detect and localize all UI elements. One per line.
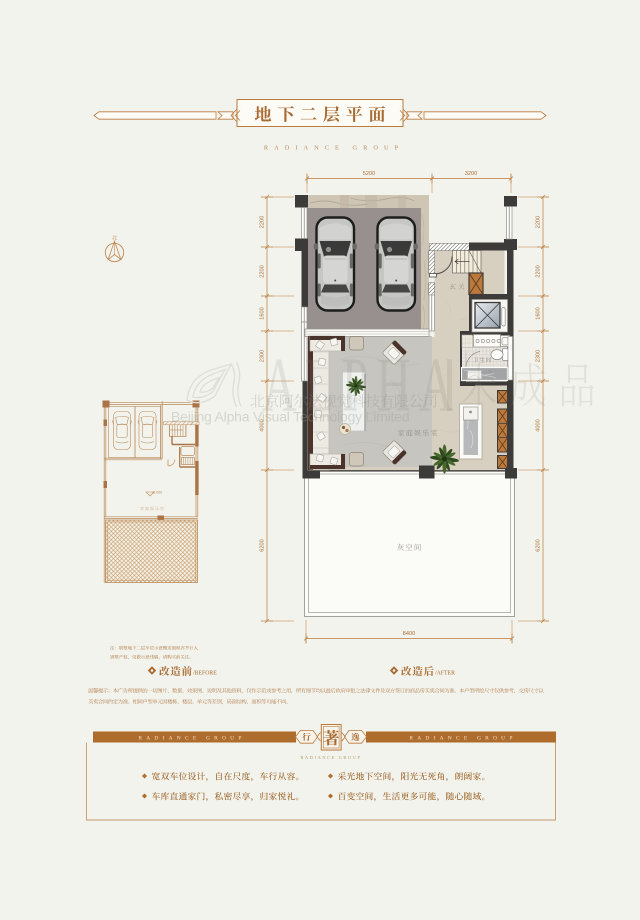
svg-text:ALPHA: ALPHA — [262, 342, 461, 427]
svg-text:RADIANCE GROUP: RADIANCE GROUP — [409, 735, 516, 741]
svg-text:-6.000: -6.000 — [152, 491, 162, 495]
svg-text:RADIANCE GROUP: RADIANCE GROUP — [264, 145, 404, 152]
svg-text:RADIANCE GROUP: RADIANCE GROUP — [300, 755, 361, 760]
svg-text:/AFTER: /AFTER — [435, 671, 455, 677]
svg-text:3200: 3200 — [465, 171, 477, 177]
svg-text:1600: 1600 — [260, 307, 266, 319]
svg-text:2200: 2200 — [260, 216, 266, 228]
svg-text:2200: 2200 — [536, 265, 542, 277]
svg-text:6200: 6200 — [536, 539, 542, 551]
svg-text:8400: 8400 — [403, 631, 415, 637]
svg-text:2300: 2300 — [536, 350, 542, 362]
svg-text:6200: 6200 — [260, 539, 266, 551]
svg-text:1600: 1600 — [536, 307, 542, 319]
svg-text:2200: 2200 — [260, 265, 266, 277]
svg-text:4000: 4000 — [536, 419, 542, 431]
svg-text:RADIANCE GROUP: RADIANCE GROUP — [138, 735, 245, 741]
svg-text:5200: 5200 — [363, 171, 375, 177]
svg-text:/BEFORE: /BEFORE — [193, 671, 217, 677]
svg-text:2200: 2200 — [536, 216, 542, 228]
